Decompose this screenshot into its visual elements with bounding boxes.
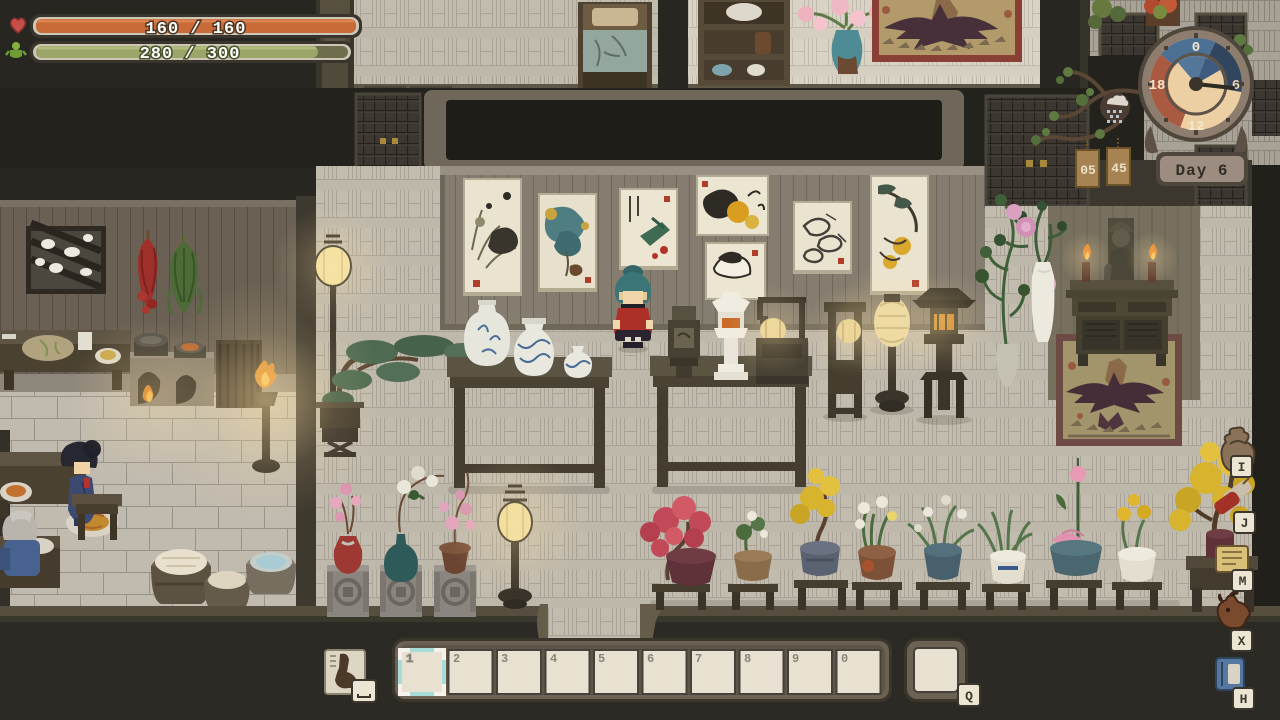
svg-text:Day 6: Day 6 — [1175, 162, 1228, 180]
svg-text:18: 18 — [1149, 78, 1166, 94]
svg-text:Q: Q — [965, 689, 973, 704]
svg-text:M: M — [1239, 574, 1247, 589]
svg-text:3: 3 — [501, 652, 508, 666]
svg-text:9: 9 — [792, 652, 799, 666]
svg-text:160 / 160: 160 / 160 — [146, 20, 247, 39]
svg-text:4: 4 — [550, 652, 557, 666]
svg-text:05: 05 — [1080, 163, 1096, 178]
svg-text:H: H — [1240, 692, 1248, 707]
svg-text:I: I — [1238, 460, 1246, 475]
svg-text:5: 5 — [598, 652, 605, 666]
svg-text:0: 0 — [841, 652, 848, 666]
svg-text:2: 2 — [453, 652, 460, 666]
svg-text:7: 7 — [695, 652, 702, 666]
svg-text:X: X — [1238, 634, 1246, 649]
svg-text:45: 45 — [1111, 161, 1127, 176]
svg-text:J: J — [1241, 516, 1249, 531]
svg-text:1: 1 — [406, 652, 413, 666]
svg-text:12: 12 — [1188, 119, 1205, 135]
svg-text:6: 6 — [647, 652, 654, 666]
svg-text:280 / 300: 280 / 300 — [140, 45, 241, 64]
svg-text:0: 0 — [1192, 40, 1200, 56]
svg-text:8: 8 — [744, 652, 751, 666]
